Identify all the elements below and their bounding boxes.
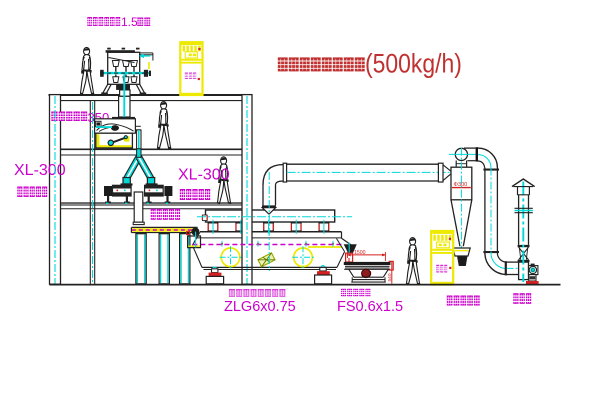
svg-text:1.5: 1.5	[121, 15, 138, 29]
svg-text:XL-300: XL-300	[14, 162, 66, 179]
svg-text:Φ300: Φ300	[454, 182, 468, 188]
svg-text:XL-300: XL-300	[178, 167, 230, 184]
svg-text:ZLG6x0.75: ZLG6x0.75	[224, 299, 296, 315]
svg-text:1500: 1500	[354, 250, 366, 256]
svg-text:FS0.6x1.5: FS0.6x1.5	[337, 299, 403, 315]
svg-text:540: 540	[387, 273, 393, 281]
svg-text:(500kg/h): (500kg/h)	[365, 49, 462, 79]
